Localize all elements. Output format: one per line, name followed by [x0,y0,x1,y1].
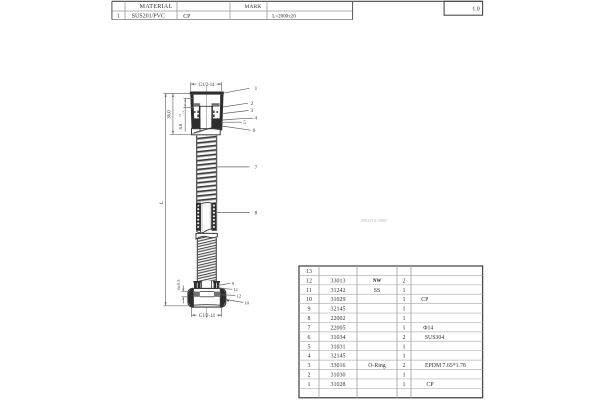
svg-text:32145: 32145 [331,307,346,313]
svg-text:4: 4 [254,116,257,122]
svg-text:CP: CP [421,297,428,303]
svg-text:31028: 31028 [331,382,346,388]
svg-text:1: 1 [403,382,406,388]
svg-text:2: 2 [251,101,254,107]
svg-text:31031: 31031 [331,344,346,350]
svg-text:1: 1 [255,86,258,92]
svg-text:4: 4 [308,354,311,360]
svg-text:1: 1 [403,288,406,294]
svg-text:32145: 32145 [331,354,346,360]
svg-text:1: 1 [403,325,406,331]
svg-text:8.0: 8.0 [178,123,183,129]
svg-text:31242: 31242 [331,288,346,294]
svg-text:6: 6 [308,335,311,341]
svg-text:NW: NW [373,279,381,284]
svg-text:3: 3 [308,363,311,369]
svg-text:1: 1 [403,344,406,350]
svg-text:SS: SS [374,288,380,294]
svg-text:L: L [160,201,165,204]
svg-text:EN1113-2008: EN1113-2008 [361,218,387,223]
svg-text:MATERIAL: MATERIAL [140,3,173,10]
svg-text:1: 1 [403,307,406,313]
svg-text:22005: 22005 [331,325,346,331]
svg-text:1.0: 1.0 [472,7,480,13]
svg-text:Φ14: Φ14 [423,325,433,331]
svg-text:13: 13 [306,269,312,275]
svg-text:1: 1 [403,373,406,379]
svg-text:SUS304: SUS304 [425,335,444,341]
svg-text:8: 8 [308,316,311,322]
svg-text:9: 9 [308,307,311,313]
svg-text:7: 7 [308,325,311,331]
svg-text:31029: 31029 [331,297,346,303]
svg-text:22002: 22002 [331,316,346,322]
svg-text:CP: CP [427,382,434,388]
svg-text:MARK: MARK [245,4,262,10]
svg-text:36.0: 36.0 [167,110,172,119]
svg-text:2: 2 [403,363,406,369]
svg-text:5: 5 [243,120,246,126]
svg-text:1: 1 [117,13,120,19]
svg-text:L=2000±20: L=2000±20 [272,14,296,19]
svg-text:12: 12 [306,278,312,284]
svg-text:3: 3 [251,108,254,114]
svg-text:10: 10 [306,297,312,303]
svg-text:7: 7 [255,165,258,171]
svg-text:1: 1 [403,354,406,360]
svg-text:2: 2 [308,373,311,379]
svg-text:-1: -1 [181,111,185,114]
svg-text:31030: 31030 [331,373,346,379]
svg-text:31034: 31034 [331,335,346,341]
svg-text:CP: CP [183,14,190,20]
svg-text:G1/2-14: G1/2-14 [199,83,216,88]
svg-text:6: 6 [253,128,256,134]
svg-text:12: 12 [237,293,242,298]
svg-text:5: 5 [308,344,311,350]
svg-text:10: 10 [244,300,249,305]
svg-text:11: 11 [234,287,239,292]
svg-text:2: 2 [403,278,406,284]
svg-text:EPDM 7.65*1.78: EPDM 7.65*1.78 [425,363,466,369]
svg-text:8: 8 [255,211,258,217]
svg-text:O-Ring: O-Ring [368,363,385,369]
svg-text:6±0.5: 6±0.5 [176,279,181,290]
svg-text:1: 1 [308,382,311,388]
svg-text:33013: 33013 [331,278,346,284]
svg-text:11: 11 [306,288,312,294]
svg-text:33016: 33016 [331,363,346,369]
svg-text:G1/2-14: G1/2-14 [199,314,216,319]
svg-text:SUS201/PVC: SUS201/PVC [132,14,165,20]
svg-text:2: 2 [403,335,406,341]
svg-text:1: 1 [403,316,406,322]
svg-text:1: 1 [403,297,406,303]
